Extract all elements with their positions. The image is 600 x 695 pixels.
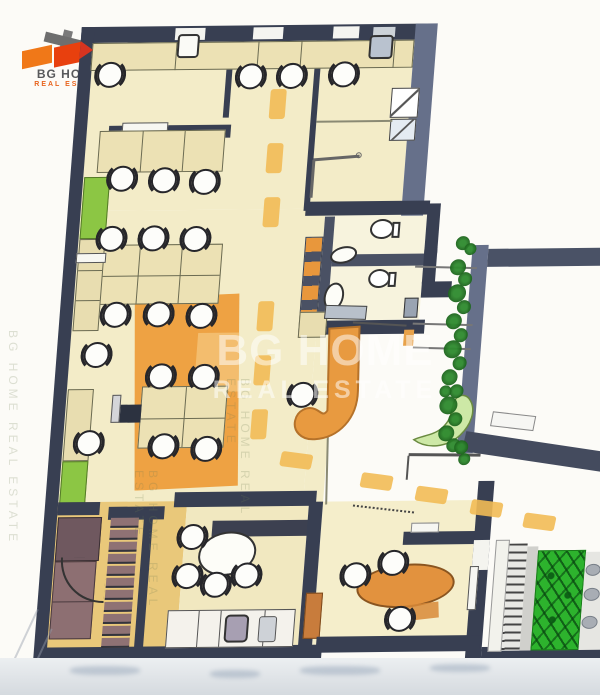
walk-path-dash: [414, 486, 449, 505]
shrub: [464, 243, 477, 255]
shrub: [458, 453, 471, 465]
office-chair: [190, 364, 218, 390]
office-chair: [202, 572, 230, 598]
office-chair: [288, 382, 316, 408]
walk-path-dash: [269, 89, 287, 119]
shrub: [452, 356, 467, 370]
walk-path-dash: [522, 512, 557, 531]
walk-path-dash: [256, 301, 274, 331]
office-chair: [108, 166, 136, 192]
office-chair: [232, 562, 260, 588]
scan-smudge: [430, 664, 490, 672]
scan-smudge: [70, 666, 140, 675]
stair-tread: [110, 518, 139, 528]
generated-symbols-layer: [0, 0, 600, 695]
walk-path-dash: [469, 499, 504, 518]
office-chair: [341, 562, 369, 588]
stair-tread: [105, 590, 134, 600]
walk-path-dash: [279, 451, 314, 470]
office-chair: [75, 430, 103, 456]
stair-tread: [103, 614, 132, 624]
stair-tread: [106, 578, 135, 588]
office-chair: [173, 563, 201, 589]
office-chair: [96, 62, 124, 88]
office-chair: [178, 524, 206, 550]
stepping-stone: [585, 564, 600, 576]
office-chair: [98, 226, 126, 252]
stair-tread: [101, 638, 130, 648]
stair-tread: [109, 530, 138, 540]
walk-path-dash: [250, 409, 268, 439]
shrub: [441, 369, 458, 385]
office-chair: [192, 436, 220, 462]
shrub: [456, 300, 471, 314]
office-chair: [102, 302, 130, 328]
office-chair: [386, 606, 414, 632]
walk-path-dash: [253, 355, 271, 385]
office-chair: [147, 363, 175, 389]
scan-smudge: [210, 670, 260, 678]
office-chair: [181, 226, 209, 252]
scan-edge-strip: [0, 658, 600, 695]
stair-tread: [104, 602, 133, 612]
stair-tread: [107, 566, 136, 576]
office-chair: [145, 301, 173, 327]
stair-tread: [102, 626, 131, 636]
scan-smudge: [300, 666, 380, 675]
stair-tread: [107, 554, 136, 564]
shrub: [454, 440, 469, 454]
shrub: [445, 313, 462, 329]
stair-tread: [108, 542, 137, 552]
walk-path-dash: [359, 472, 394, 491]
office-chair: [237, 63, 265, 89]
office-chair: [187, 303, 215, 329]
office-chair: [83, 342, 111, 368]
floor-plan: [0, 0, 600, 695]
shrub: [448, 412, 463, 426]
office-chair: [150, 167, 178, 193]
walk-path-dash: [265, 143, 283, 173]
office-chair: [278, 63, 306, 89]
office-chair: [149, 433, 177, 459]
scanned-floor-plan: BG HOME REAL ESTATE: [0, 0, 600, 695]
office-chair: [330, 61, 358, 87]
walk-path-dash: [262, 197, 280, 227]
office-chair: [140, 225, 168, 251]
office-chair: [379, 550, 407, 576]
office-chair: [191, 169, 219, 195]
